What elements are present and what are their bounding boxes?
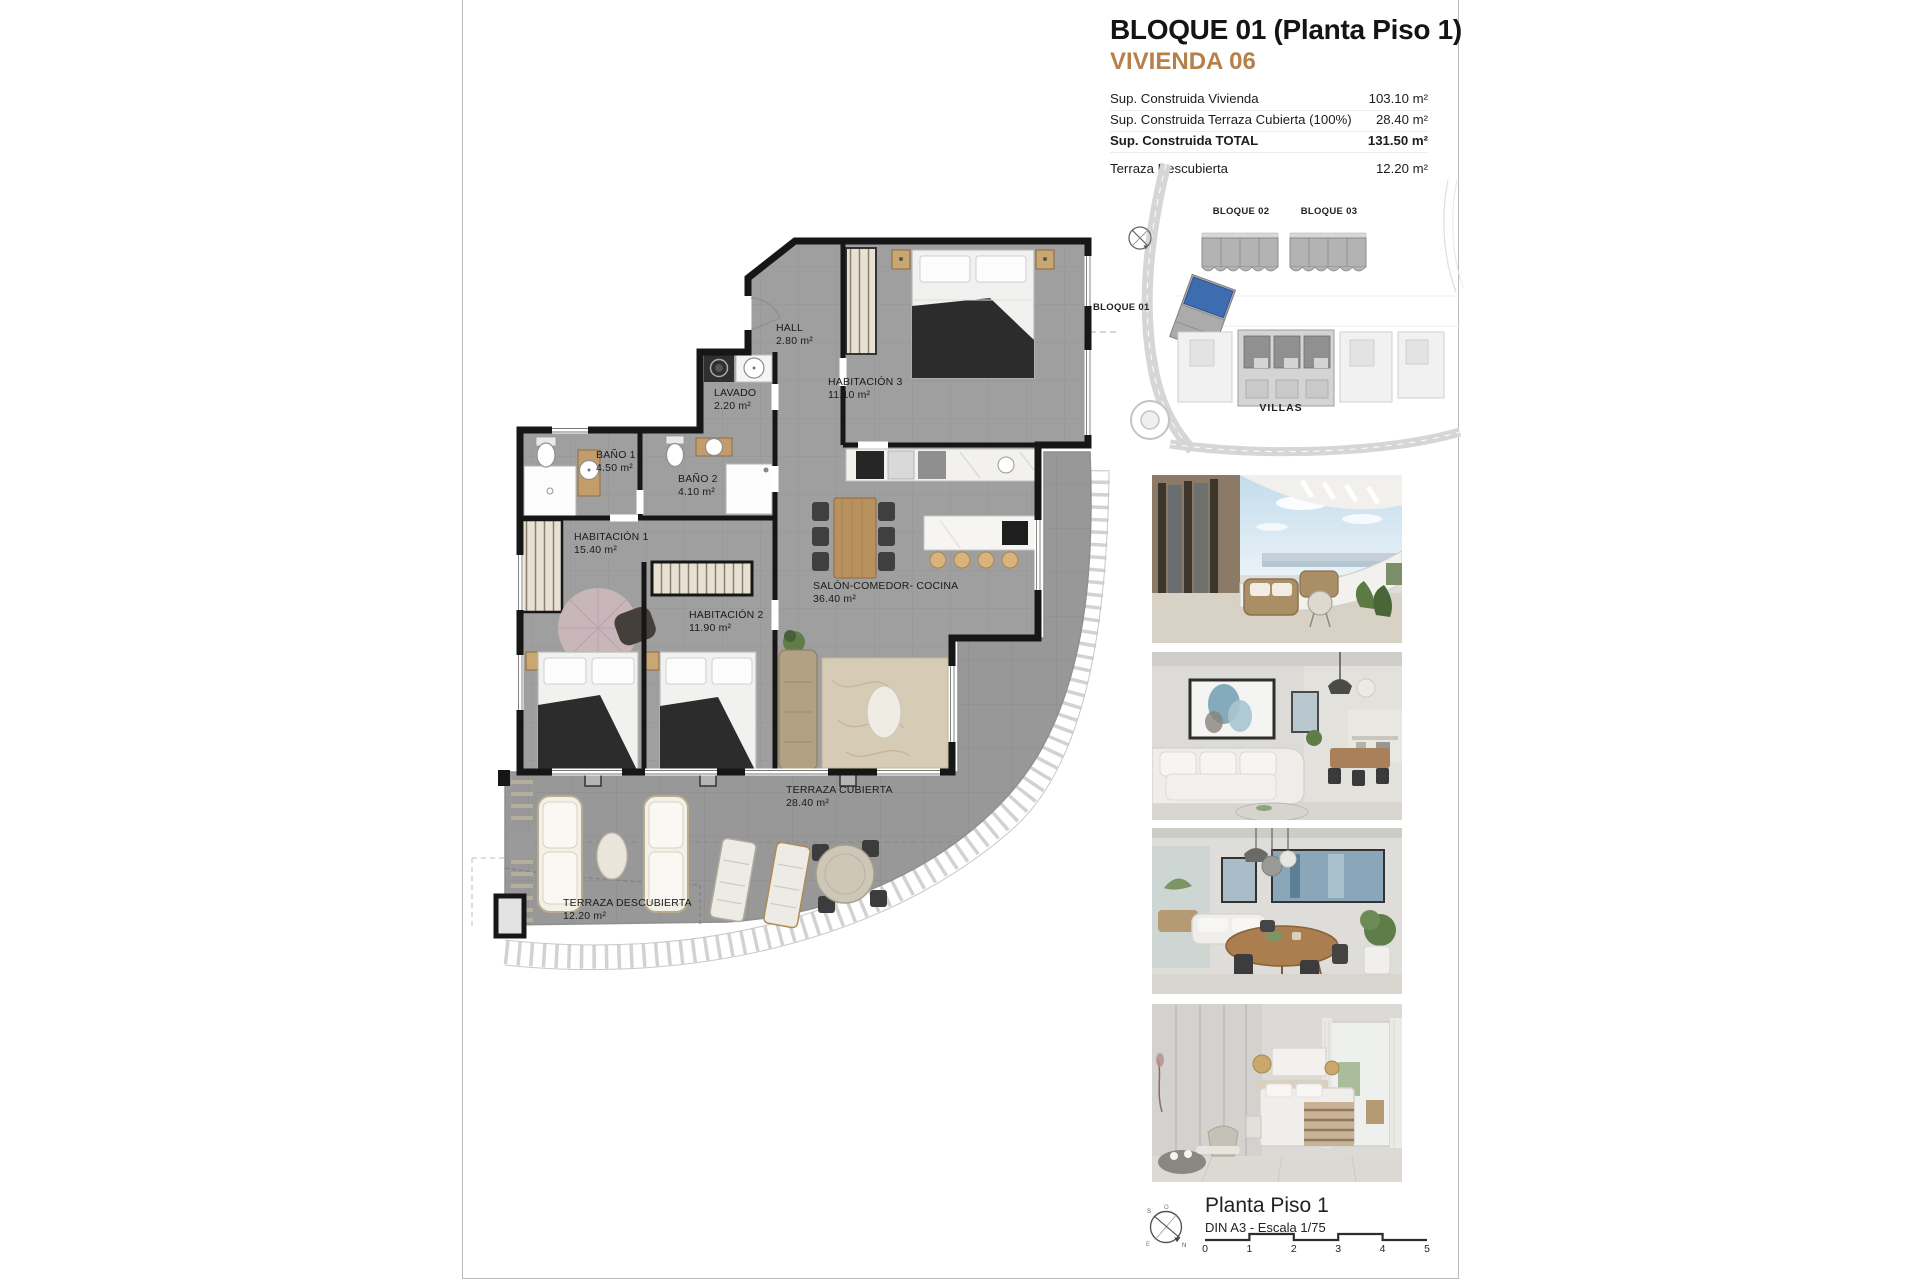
- page-subtitle: VIVIENDA 06: [1110, 48, 1256, 76]
- bloque02-building: [1202, 233, 1278, 271]
- room-label-habitacion2: HABITACIÓN 211.90 m²: [689, 609, 764, 634]
- laundry-fixtures: [704, 355, 772, 382]
- row-label: Sup. Construida Terraza Cubierta (100%): [1110, 112, 1352, 128]
- kitchen-counter: [846, 449, 1038, 481]
- photo-dining-area: [1152, 828, 1402, 994]
- salon-rug: [822, 658, 948, 768]
- scale-tick: 2: [1291, 1243, 1297, 1255]
- table-row: Sup. Construida Terraza Cubierta (100%) …: [1110, 111, 1428, 132]
- site-label-bloque02: BLOQUE 02: [1213, 206, 1270, 217]
- floor-plan-drawing: [420, 225, 1120, 1075]
- bed-habitacion3: [912, 250, 1034, 378]
- row-label: Sup. Construida TOTAL: [1110, 133, 1258, 149]
- dining-table: [812, 498, 895, 578]
- compass-letter-o: O: [1164, 1205, 1169, 1211]
- room-label-lavado: LAVADO2.20 m²: [714, 387, 756, 412]
- site-label-villas: VILLAS: [1259, 402, 1302, 414]
- room-label-bano2: BAÑO 24.10 m²: [678, 473, 718, 498]
- compass-letter-s: S: [1147, 1209, 1151, 1215]
- salon-sofa: [779, 630, 817, 770]
- room-label-bano1: BAÑO 14.50 m²: [596, 449, 636, 474]
- row-value: 103.10 m²: [1369, 91, 1428, 107]
- site-plan-map: [1085, 158, 1465, 468]
- row-value: 28.40 m²: [1376, 112, 1428, 128]
- table-row-total: Sup. Construida TOTAL 131.50 m²: [1110, 132, 1428, 153]
- bloque03-building: [1290, 233, 1366, 271]
- room-label-salon: SALÓN-COMEDOR- COCINA36.40 m²: [813, 580, 958, 605]
- room-label-terraza-cubierta: TERRAZA CUBIERTA28.40 m²: [786, 784, 893, 809]
- room-label-habitacion1: HABITACIÓN 115.40 m²: [574, 531, 649, 556]
- page-title: BLOQUE 01 (Planta Piso 1): [1110, 14, 1462, 46]
- compass-icon: N S O E: [1143, 1203, 1189, 1251]
- scale-tick: 4: [1380, 1243, 1386, 1255]
- scale-bar: [1205, 1232, 1427, 1242]
- bedroom-photo-illustration: [1152, 1004, 1402, 1182]
- bed-habitacion1: [526, 652, 638, 772]
- villas-houses: [1244, 336, 1330, 398]
- scale-tick: 3: [1335, 1243, 1341, 1255]
- dining-photo-illustration: [1152, 828, 1402, 994]
- photo-bedroom: [1152, 1004, 1402, 1182]
- floorplan-sheet-page: BLOQUE 01 (Planta Piso 1) VIVIENDA 06 Su…: [0, 0, 1920, 1280]
- photo-terrace-view: [1152, 475, 1402, 643]
- photo-living-room: [1152, 652, 1402, 820]
- site-label-bloque03: BLOQUE 03: [1301, 206, 1358, 217]
- room-label-habitacion3: HABITACIÓN 311.10 m²: [828, 376, 903, 401]
- scale-tick: 0: [1202, 1243, 1208, 1255]
- wardrobe: [652, 562, 752, 595]
- compass-letter-e: E: [1146, 1242, 1150, 1248]
- row-value: 131.50 m²: [1368, 133, 1428, 149]
- table-row: Sup. Construida Vivienda 103.10 m²: [1110, 90, 1428, 111]
- room-label-hall: HALL2.80 m²: [776, 322, 813, 347]
- scale-tick: 1: [1246, 1243, 1252, 1255]
- compass-letter-n: N: [1182, 1243, 1186, 1249]
- row-label: Sup. Construida Vivienda: [1110, 91, 1259, 107]
- wardrobe: [522, 520, 562, 612]
- living-room-photo-illustration: [1152, 652, 1402, 820]
- wardrobe: [846, 248, 876, 354]
- terrace-photo-illustration: [1152, 475, 1402, 643]
- scale-tick: 5: [1424, 1243, 1430, 1255]
- bed-habitacion2: [646, 652, 756, 772]
- scale-bar-ticks: 0 1 2 3 4 5: [1205, 1243, 1427, 1255]
- footer-title: Planta Piso 1: [1205, 1194, 1329, 1218]
- room-label-terraza-descubierta: TERRAZA DESCUBIERTA12.20 m²: [563, 897, 692, 922]
